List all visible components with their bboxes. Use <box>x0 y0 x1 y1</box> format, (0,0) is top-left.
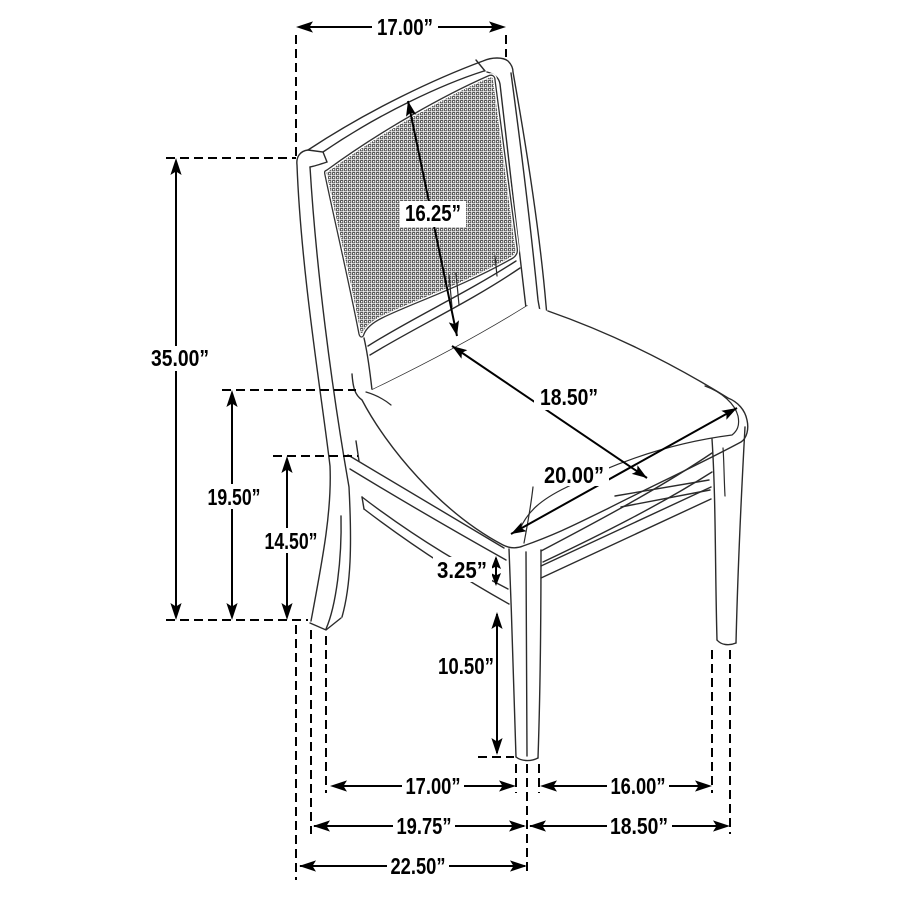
svg-text:18.50”: 18.50” <box>540 384 598 410</box>
svg-text:14.50”: 14.50” <box>265 528 318 554</box>
svg-text:17.00”: 17.00” <box>377 14 433 40</box>
svg-text:20.00”: 20.00” <box>544 462 604 488</box>
svg-text:3.25”: 3.25” <box>437 557 487 583</box>
svg-text:19.50”: 19.50” <box>208 484 261 510</box>
svg-text:17.00”: 17.00” <box>406 773 461 799</box>
svg-text:22.50”: 22.50” <box>391 853 446 879</box>
svg-text:16.25”: 16.25” <box>405 200 461 226</box>
svg-text:18.50”: 18.50” <box>610 813 668 839</box>
svg-text:10.50”: 10.50” <box>438 653 494 679</box>
svg-text:35.00”: 35.00” <box>151 345 209 371</box>
svg-text:16.00”: 16.00” <box>611 773 666 799</box>
svg-text:19.75”: 19.75” <box>397 813 452 839</box>
